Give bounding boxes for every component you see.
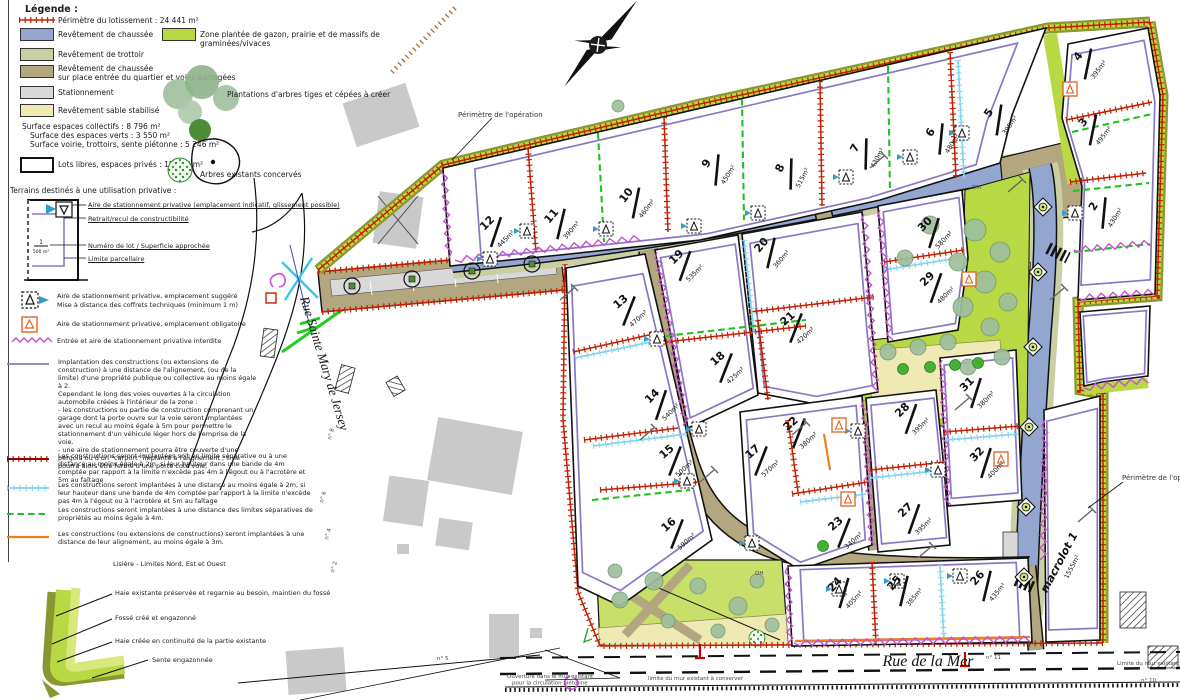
parcel-block [1044, 396, 1100, 642]
tree-icon [897, 250, 913, 266]
swatch-sidewalk [20, 48, 54, 61]
rule-cyan-swatch [5, 484, 51, 492]
rule-orange-swatch [5, 533, 51, 541]
swatch-free-lot [20, 157, 54, 173]
perimeter-swatch-icon [18, 15, 56, 25]
wall-note-left: Ouverture dans le mur existantpour la ci… [507, 674, 594, 687]
perimeter-label: Périmètre du lotissement : 24 441 m² [58, 16, 199, 25]
tree-icon [661, 614, 675, 628]
wall-note-center: limite du mur existant à conserver [648, 675, 744, 682]
tree-icon [612, 592, 628, 608]
tree-icon [729, 597, 747, 615]
parking-suggested-icon [20, 290, 56, 310]
tree-icon [765, 618, 779, 632]
tree-icon [994, 349, 1010, 365]
symbol-forbidden-label: Entrée et aire de stationnement privativ… [57, 337, 221, 345]
rule-cyan-text: Les constructions seront implantées à un… [58, 481, 313, 505]
lisere-callout-3: Haie créée en continuité de la partie ex… [115, 637, 266, 645]
tree-icon [711, 624, 725, 638]
small-map-label: OH [755, 571, 763, 577]
tree-icon [974, 271, 996, 293]
swatch-road [20, 28, 54, 41]
tree-icon [990, 242, 1010, 262]
street-name-rue-de-la-mer: Rue de la Mer [881, 653, 974, 670]
lisere-title: Lisière - Limites Nord, Est et Ouest [113, 560, 226, 568]
lot-diagram: 1 500 m² [24, 198, 88, 288]
diagram-callout-1: Aire de stationnement privative (emplace… [88, 201, 408, 209]
swatch-shared [20, 65, 54, 78]
tree-icon [612, 100, 624, 112]
tree-icon [645, 572, 663, 590]
swatch-green-zone [162, 28, 196, 41]
swatch-green-zone-label: Zone plantée de gazon, prairie et de mas… [200, 30, 410, 48]
rule-red-text: Les constructions seront implantées soit… [58, 452, 308, 484]
diagram-callout-4: Limite parcellaire [88, 255, 144, 263]
private-use-title: Terrains destinés à une utilisation priv… [10, 186, 176, 195]
swatch-road-label: Revêtement de chaussée [58, 30, 153, 39]
small-map-label: n° 11 [986, 655, 1001, 661]
legend-panel: Légende : Périmètre du lotissement : 24 … [0, 0, 420, 700]
parking-required-icon [1063, 82, 1077, 96]
diagram-callout-3: Numéro de lot / Superficie approchée [88, 242, 210, 250]
tree-icon [880, 344, 896, 360]
shrub-icon [950, 360, 961, 371]
shrub-icon [898, 364, 909, 375]
north-arrow-icon [546, 0, 654, 90]
tree-icon [999, 293, 1017, 311]
tree-icon [981, 318, 999, 336]
perimetre-operation-label-2: Périmètre de l'opération [1122, 474, 1180, 482]
site-plan-page: 12445m²11390m²10460m²9450m²8515m²7430m²6… [0, 0, 1180, 700]
existing-tree-icon [749, 630, 765, 646]
small-map-label: n° 10 [1141, 678, 1156, 684]
shrub-icon [818, 541, 829, 552]
street-tree-pit [529, 261, 535, 267]
svg-text:1: 1 [39, 239, 43, 246]
rule-orange-text: Les constructions (ou extensions de cons… [58, 530, 313, 546]
swatch-sidewalk-label: Revêtement de trottoir [58, 50, 144, 59]
symbol-required-label: Aire de stationnement privative, emplace… [57, 320, 246, 328]
parcel-block [940, 350, 1022, 506]
parking-required-icon [20, 315, 56, 333]
parcel-block [1062, 28, 1160, 300]
shrub-icon [973, 358, 984, 369]
parking-required-icon [841, 492, 855, 506]
trees-create-label: Plantations d'arbres tiges et cépées à c… [227, 90, 407, 99]
tree-icon [949, 253, 967, 271]
svg-text:500 m²: 500 m² [33, 249, 49, 255]
street-tree-pit [469, 268, 475, 274]
stat-verts: Surface des espaces verts : 3 550 m² [30, 131, 170, 140]
tree-icon [940, 334, 956, 350]
perimetre-operation-label-1: Périmètre de l'opération [458, 111, 543, 119]
swatch-sand [20, 104, 54, 117]
small-map-label: n° 5 [437, 656, 449, 662]
swatch-parking-label: Stationnement [58, 88, 114, 97]
stat-collectifs: Surface espaces collectifs : 8 796 m² [22, 122, 161, 131]
lisere-callout-2: Fossé créé et engazonné [115, 614, 196, 622]
tree-icon [690, 578, 706, 594]
tree-icon [608, 564, 622, 578]
rule-green-text: Les constructions seront implantées à un… [58, 506, 313, 522]
lisere-callout-4: Sente engazonnée [152, 656, 213, 664]
diagram-callout-2: Retrait/recul de constructibilité [88, 215, 189, 223]
tree-icon [964, 219, 986, 241]
swatch-sand-label: Revêtement sable stabilisé [58, 106, 159, 115]
swatch-shared-label: Revêtement de chaussée [58, 64, 153, 73]
wall-note-right: Limite du mur existant à conserver [1117, 660, 1180, 667]
tree-icon [953, 297, 973, 317]
symbol-suggested-label: Aire de stationnement privative, emplace… [57, 292, 238, 300]
parking-required-icon [962, 272, 976, 286]
rule-green-swatch [5, 510, 51, 518]
legend-title: Légende : [25, 4, 78, 15]
forbidden-wave-icon [10, 335, 54, 345]
symbol-suggested-label2: Mise à distance des coffrets techniques … [57, 301, 238, 309]
parking-required-icon [832, 418, 846, 432]
tree-icon [910, 339, 926, 355]
small-map-label: DM [972, 185, 981, 191]
lisere-callout-1: Haie existante préservée et regarnie au … [115, 589, 405, 597]
rule-red-swatch [5, 455, 51, 463]
shrub-icon [925, 362, 936, 373]
trees-existing-label: Arbres existants concervés [200, 170, 301, 179]
swatch-parking [20, 86, 54, 99]
